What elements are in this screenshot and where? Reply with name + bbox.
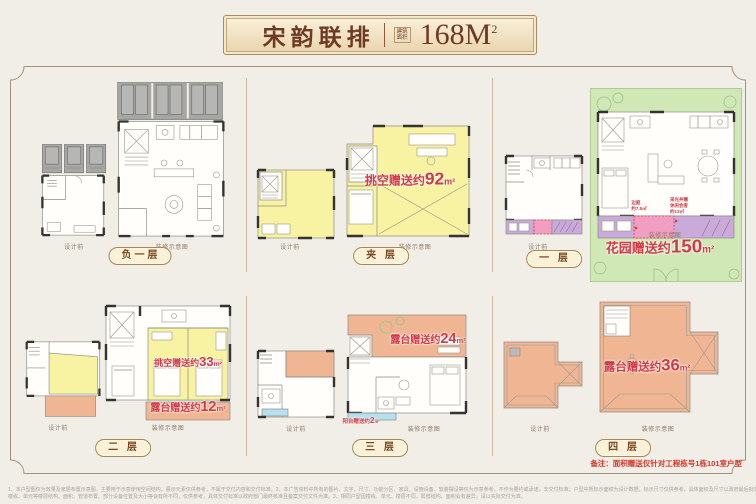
basement-before-plan xyxy=(38,144,112,238)
floor-badge-floor4: 四 层 xyxy=(595,439,651,457)
divider xyxy=(246,78,247,272)
area-tag-seal: 建筑面积 xyxy=(394,27,411,44)
title-banner: 宋韵联排 建筑面积 168M2 xyxy=(223,15,537,55)
caption-after: 装修示意图 xyxy=(642,424,675,433)
floor-badge-floor1: 一 层 xyxy=(526,250,582,268)
panel-floor2: 挑空赠送约33m² 露台赠送约12m² 设计前 装修示意图 二 层 xyxy=(12,290,244,472)
floor-badge-mezzanine: 夹 层 xyxy=(353,247,409,265)
floor4-before-plan xyxy=(500,338,586,414)
caption-after: 装修示意图 xyxy=(408,424,441,433)
area-value: 168M2 xyxy=(420,20,498,50)
floor2-before-plan xyxy=(22,340,106,422)
caption-before: 设计前 xyxy=(48,423,68,432)
gift-note-mezzanine: 挑空赠送约92m² xyxy=(365,170,455,187)
floor1-before-plan xyxy=(504,154,584,236)
area-number: 168M xyxy=(420,18,492,51)
panel-basement: 设计前 装修示意图 负一层 xyxy=(12,70,244,278)
divider xyxy=(492,78,493,272)
panel-floor4: 露台赠送约36m² 设计前 装修示意图 四 层 xyxy=(494,290,744,472)
area-exponent: 2 xyxy=(491,22,497,36)
caption-after: 装修示意图 xyxy=(152,423,185,432)
gift-note-void: 挑空赠送约33m² xyxy=(154,355,222,369)
remark-note: 备注：面积赠送仅针对工程栋号1栋101室户型 xyxy=(590,458,742,469)
floor3-before-plan xyxy=(256,345,336,423)
side-note-court: 边庭 约7.5㎡ xyxy=(631,200,646,212)
panel-mezzanine: 挑空赠送约92m² 设计前 装修示意图 夹 层 xyxy=(248,70,490,278)
divider xyxy=(246,296,247,456)
gift-note-terrace3: 露台赠送约24m² xyxy=(390,332,465,347)
floor3-after-plan xyxy=(338,313,470,421)
title-divider xyxy=(384,23,385,47)
floor-badge-floor2: 二 层 xyxy=(95,439,151,457)
divider xyxy=(492,296,493,456)
caption-before: 设计前 xyxy=(286,424,306,433)
panel-floor1: 边庭 约7.5㎡ 采光井赠 休闲会客 约13㎡ 设计前 装修示意图 花园赠送约1… xyxy=(494,70,744,282)
project-title: 宋韵联排 xyxy=(263,18,375,52)
gift-note-balcony: 阳台赠送约2m² xyxy=(343,417,380,426)
panel-floor3: 露台赠送约24m² 阳台赠送约2m² 设计前 装修示意图 三 层 xyxy=(248,290,490,472)
mezzanine-before-plan xyxy=(256,166,338,240)
floor-badge-basement: 负一层 xyxy=(109,247,172,265)
side-note-lightwell: 采光井赠 休闲会客 约13㎡ xyxy=(670,197,688,215)
disclaimer-line1: 1、本户型图仅为效果及家居布置示意图，主要用于示意使用空间结构，展示元素仅供参考… xyxy=(8,486,748,493)
floorplan-poster: 宋韵联排 建筑面积 168M2 xyxy=(0,0,756,504)
basement-after-plan xyxy=(116,82,228,240)
disclaimer-line2: 楼栋、单元等楼层结构、面积、管道布置、部分设备位置及大小等会有所不同，仅供参考，… xyxy=(8,493,748,500)
floor-badge-floor3: 三 层 xyxy=(352,439,408,457)
gift-note-roof-terrace: 露台赠送约36m² xyxy=(604,358,691,375)
caption-before: 设计前 xyxy=(64,242,84,251)
caption-before: 设计前 xyxy=(530,424,550,433)
caption-before: 设计前 xyxy=(280,242,300,251)
gift-note-terrace2: 露台赠送约12m² xyxy=(150,400,225,415)
gift-note-garden: 花园赠送约150m² xyxy=(606,238,714,257)
